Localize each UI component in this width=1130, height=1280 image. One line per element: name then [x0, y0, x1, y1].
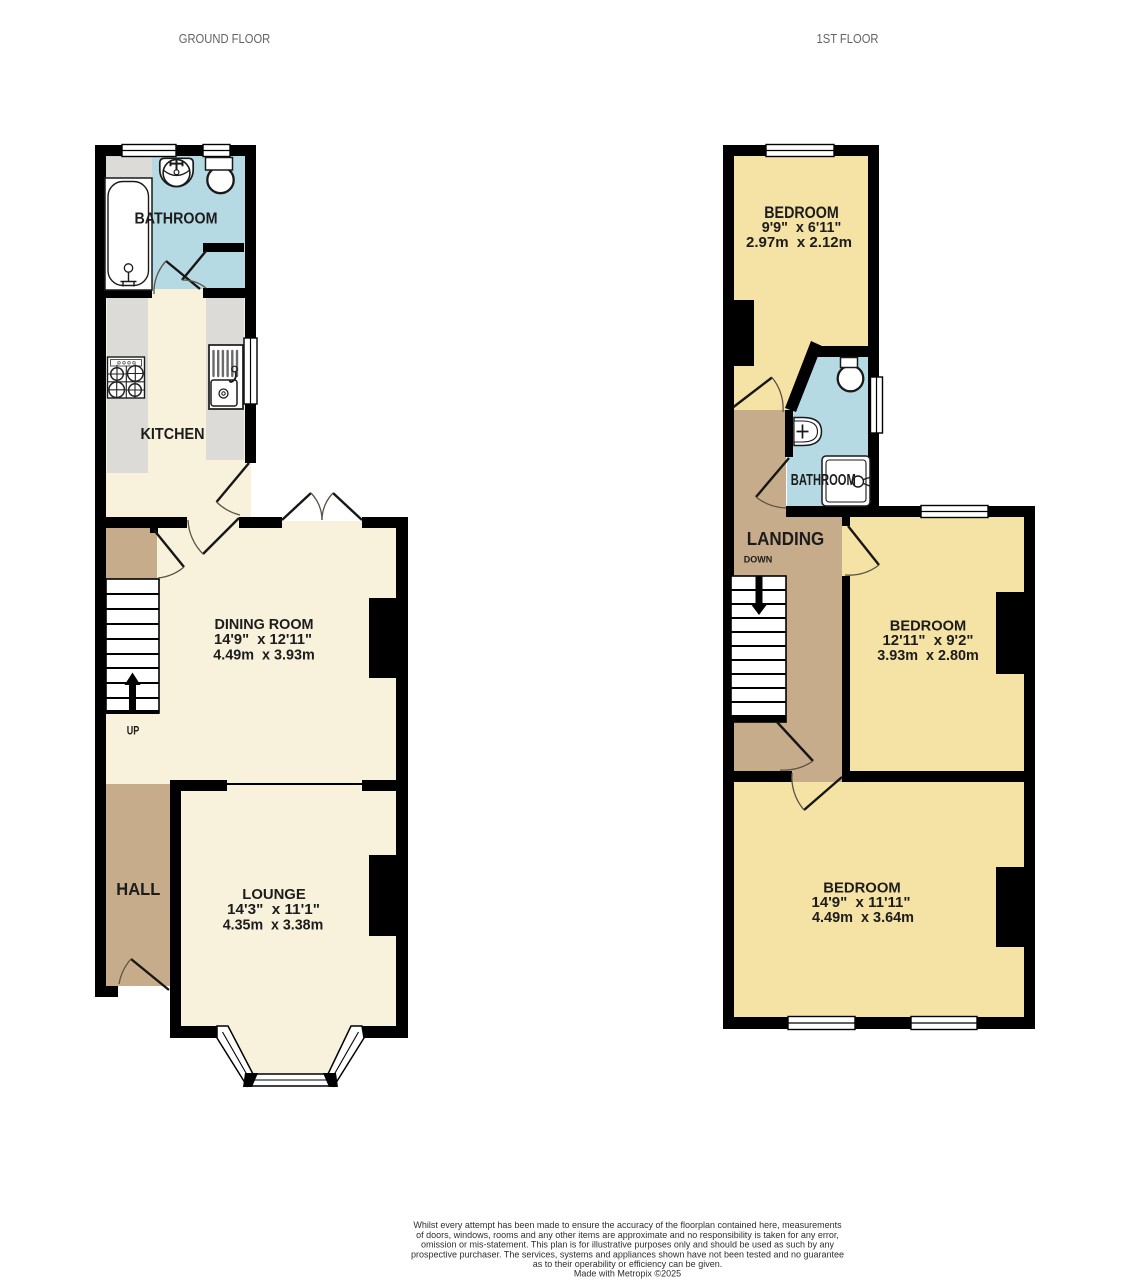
svg-text:4.49m x 3.64m: 4.49m x 3.64m — [812, 909, 914, 926]
svg-text:omission or mis-statement. Thi: omission or mis-statement. This plan is … — [421, 1240, 835, 1250]
svg-text:as to their operability or eff: as to their operability or efficiency ca… — [533, 1259, 722, 1269]
svg-text:4.49m x 3.93m: 4.49m x 3.93m — [213, 647, 315, 664]
svg-text:of doors, windows, rooms and a: of doors, windows, rooms and any other i… — [416, 1230, 839, 1240]
svg-text:1ST FLOOR: 1ST FLOOR — [817, 32, 879, 46]
svg-text:4.35m x 3.38m: 4.35m x 3.38m — [223, 917, 324, 934]
svg-text:KITCHEN: KITCHEN — [141, 426, 205, 443]
svg-text:prospective purchaser. The ser: prospective purchaser. The services, sys… — [411, 1250, 844, 1260]
svg-text:BATHROOM: BATHROOM — [135, 211, 218, 228]
svg-text:BATHROOM: BATHROOM — [791, 472, 856, 489]
svg-text:Whilst every attempt has been: Whilst every attempt has been made to en… — [413, 1220, 842, 1230]
svg-text:14'9" x 12'11": 14'9" x 12'11" — [214, 631, 312, 648]
svg-text:2.97m x 2.12m: 2.97m x 2.12m — [746, 234, 852, 251]
svg-text:HALL: HALL — [116, 879, 160, 899]
svg-text:14'3" x 11'1": 14'3" x 11'1" — [227, 901, 320, 918]
svg-text:LANDING: LANDING — [747, 528, 825, 549]
svg-text:DOWN: DOWN — [744, 555, 773, 565]
svg-text:Made with Metropix ©2025: Made with Metropix ©2025 — [574, 1269, 681, 1279]
svg-text:GROUND FLOOR: GROUND FLOOR — [179, 32, 271, 46]
svg-text:UP: UP — [127, 726, 140, 738]
svg-text:3.93m x 2.80m: 3.93m x 2.80m — [877, 647, 979, 664]
